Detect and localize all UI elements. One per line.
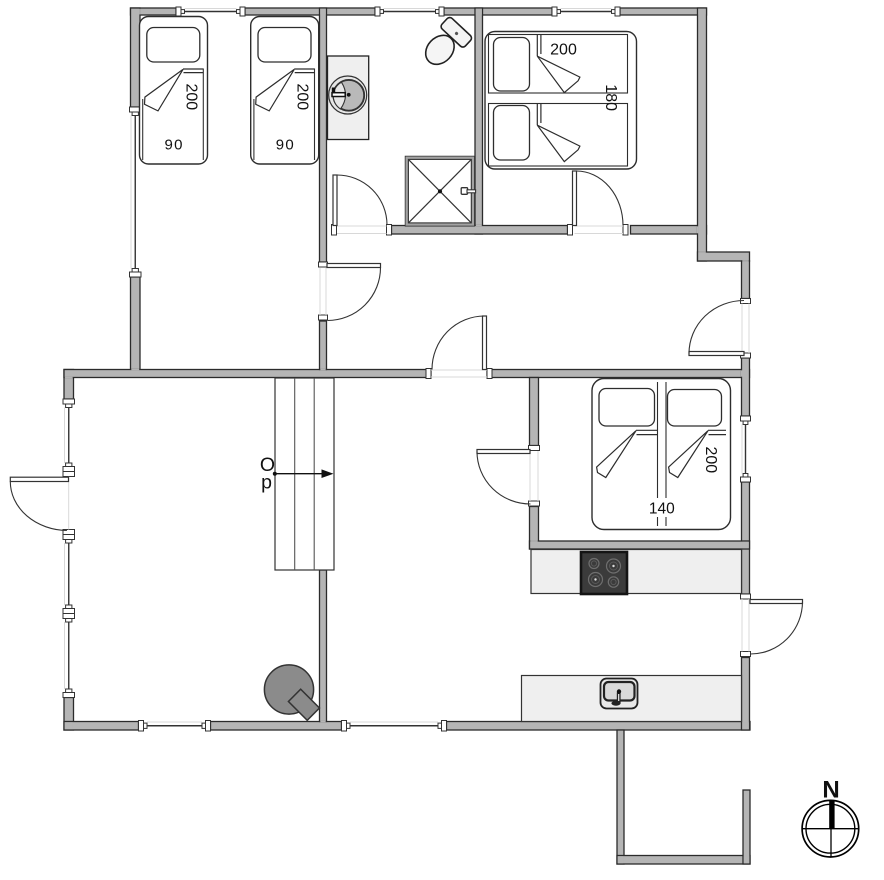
svg-text:90: 90 — [276, 137, 294, 154]
svg-text:200: 200 — [182, 84, 199, 111]
svg-text:180: 180 — [602, 84, 619, 111]
svg-text:N: N — [822, 776, 839, 803]
svg-text:200: 200 — [702, 447, 719, 474]
svg-text:140: 140 — [649, 501, 675, 518]
svg-text:90: 90 — [165, 137, 183, 154]
svg-text:200: 200 — [294, 84, 311, 111]
svg-text:p: p — [261, 472, 272, 494]
svg-text:200: 200 — [550, 42, 577, 59]
